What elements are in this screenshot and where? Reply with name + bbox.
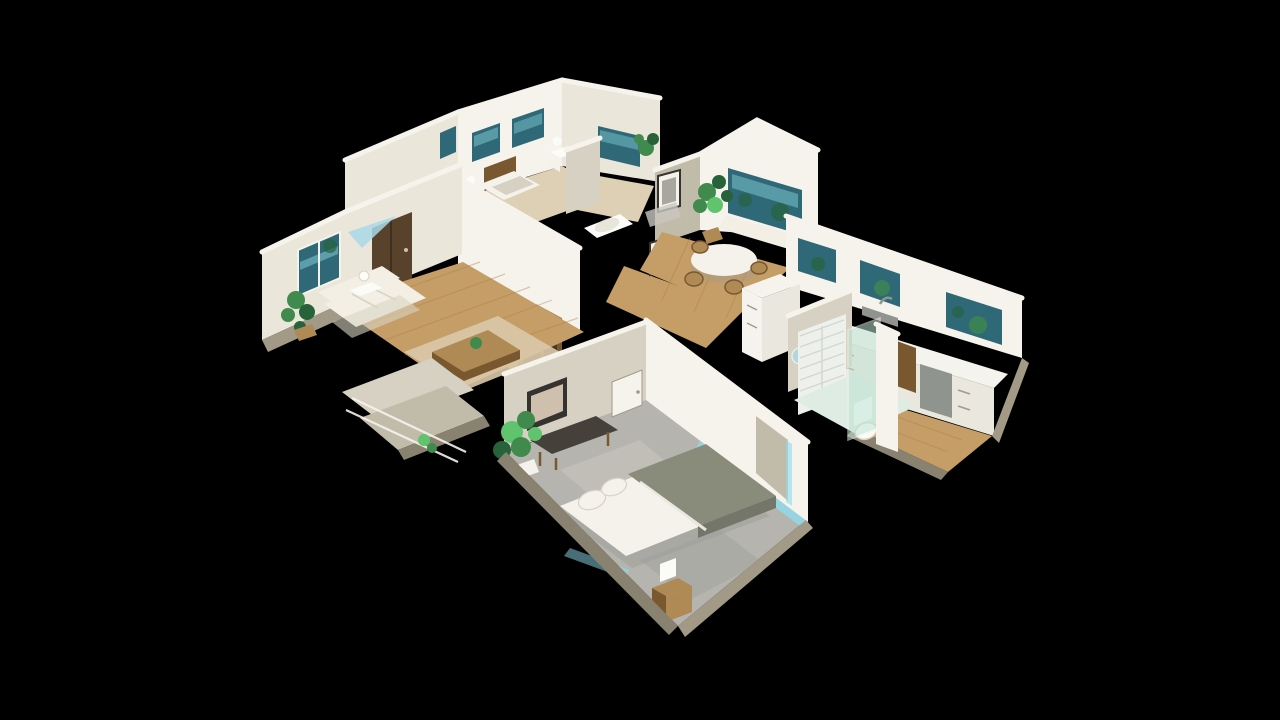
right-wall (876, 324, 898, 452)
window-a-foliage (811, 257, 825, 271)
room-master-bedroom (493, 320, 813, 637)
plant-leaf (647, 133, 659, 145)
door-knob (636, 390, 640, 394)
monstera-leaf (511, 437, 531, 457)
wicker-chair (725, 280, 743, 294)
window-c-foliage (969, 316, 987, 334)
glass-panel (848, 318, 880, 440)
dollhouse-viewer-canvas[interactable] (0, 0, 1280, 720)
dollhouse-model (0, 0, 1280, 720)
monstera-leaf (528, 427, 542, 441)
wicker-chair (685, 272, 703, 286)
table-plant (470, 337, 482, 349)
window-b-foliage (874, 280, 890, 296)
ball-lamp (359, 271, 369, 281)
plant-leaf (634, 134, 644, 144)
framed-art-inner (662, 177, 676, 205)
floor-plant-leaf (299, 304, 315, 320)
outer-band-right (992, 358, 1029, 443)
tall-plant-leaf (712, 175, 726, 189)
gable-window-foliage (323, 239, 337, 253)
door-knob (404, 248, 408, 252)
wicker-chair (692, 241, 708, 253)
small-plant (418, 434, 430, 446)
tall-plant-leaf (693, 199, 707, 213)
floor-plant-leaf (281, 308, 295, 322)
tall-plant-leaf (721, 190, 733, 202)
wicker-chair (751, 262, 767, 274)
window-c-foliage (952, 306, 964, 318)
led-glow-vertical (786, 440, 792, 506)
monstera-leaf (517, 411, 535, 429)
window-foliage (738, 193, 752, 207)
small-plant-leaf (427, 443, 437, 453)
table-lamp (553, 137, 562, 146)
tall-plant-leaf (707, 197, 723, 213)
